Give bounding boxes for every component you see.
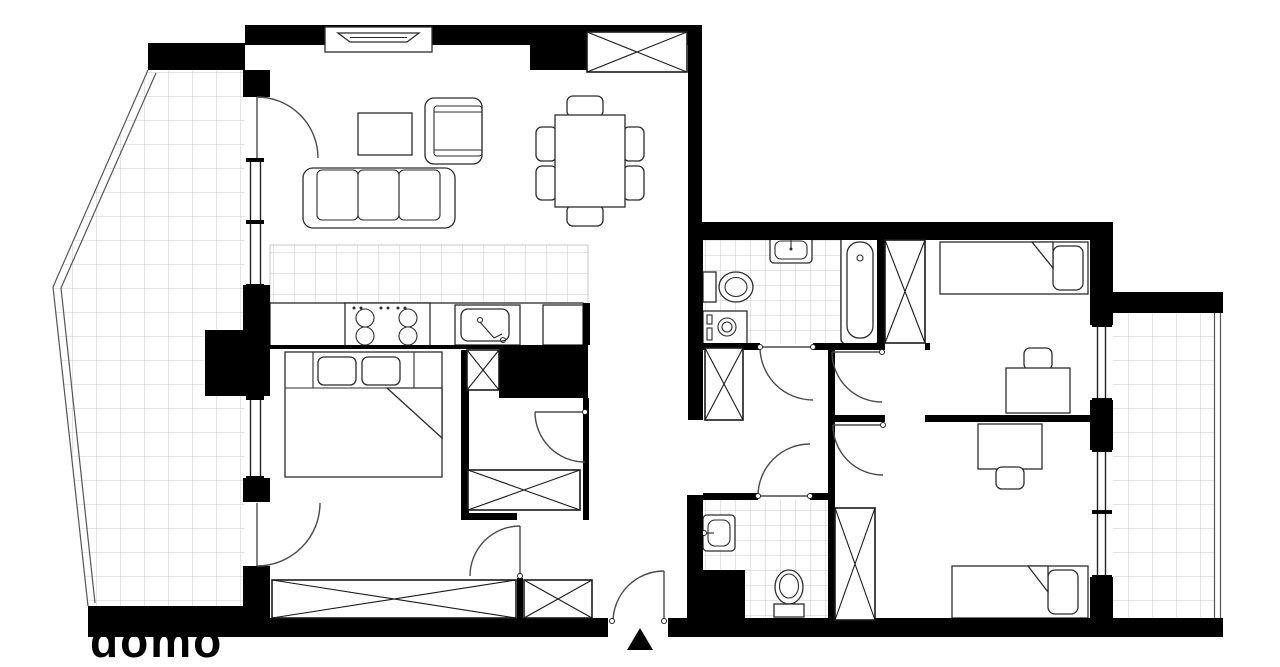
living-room-window bbox=[246, 158, 264, 288]
kitchen-counter bbox=[270, 303, 583, 347]
dining-chair bbox=[623, 166, 644, 200]
floor-plan-page: domo bbox=[0, 0, 1280, 667]
corridor-wardrobe bbox=[468, 470, 580, 510]
toilet-2 bbox=[774, 570, 804, 617]
bedroom-2-wardrobe bbox=[885, 240, 925, 343]
sofa bbox=[303, 168, 455, 228]
dining-chair bbox=[623, 127, 644, 161]
bedroom-2-window bbox=[1092, 323, 1112, 402]
desk-2 bbox=[1006, 348, 1070, 413]
desk-chair bbox=[1024, 348, 1052, 370]
bedroom-3-window bbox=[1092, 448, 1112, 579]
dining-chair bbox=[567, 205, 603, 226]
entrance-marker bbox=[627, 628, 653, 650]
bedroom-1-door bbox=[470, 526, 523, 579]
bathtub bbox=[841, 236, 879, 344]
balcony-right bbox=[1113, 313, 1221, 618]
bedroom-3-door bbox=[833, 423, 886, 476]
bedroom-2-door bbox=[832, 350, 885, 403]
tv-cabinet bbox=[325, 27, 432, 52]
kitchen-tiles bbox=[270, 245, 588, 305]
bedroom-3-wardrobe bbox=[835, 508, 875, 620]
pillow bbox=[318, 357, 356, 385]
desk-chair bbox=[996, 467, 1024, 489]
single-bed-3 bbox=[952, 566, 1088, 618]
coffee-table bbox=[358, 113, 412, 155]
cooktop bbox=[345, 303, 430, 347]
kitchen-sink bbox=[455, 305, 520, 345]
bathroom-2-door bbox=[756, 444, 813, 499]
pillow bbox=[362, 357, 400, 385]
dining-chair bbox=[536, 166, 557, 200]
pillow bbox=[1048, 570, 1078, 614]
bedroom-1-window bbox=[246, 396, 264, 480]
bedroom-3-furniture bbox=[952, 424, 1088, 618]
dining-chair bbox=[567, 96, 603, 117]
desk-3 bbox=[978, 424, 1042, 489]
bathroom-shaft bbox=[705, 348, 743, 420]
washing-machine bbox=[703, 311, 747, 344]
living-room-wardrobe bbox=[587, 32, 687, 72]
toilet bbox=[703, 272, 753, 302]
bathroom-1-door bbox=[758, 345, 816, 401]
bedroom-1-balcony-door bbox=[257, 503, 320, 566]
bedroom-1-wardrobe bbox=[272, 580, 516, 618]
living-room-furniture bbox=[303, 96, 644, 228]
fridge bbox=[543, 305, 583, 345]
living-room-balcony-door bbox=[257, 97, 318, 158]
washbasin-2 bbox=[702, 515, 736, 551]
kitchen-shaft bbox=[467, 350, 499, 390]
corridor-wardrobe-door bbox=[535, 410, 588, 463]
pillow bbox=[1053, 246, 1083, 290]
entry-closet bbox=[524, 580, 592, 618]
bedroom-2-furniture bbox=[940, 242, 1088, 413]
walls bbox=[88, 25, 1223, 637]
dining-table bbox=[536, 96, 644, 226]
entrance-door bbox=[610, 571, 667, 624]
dining-chair bbox=[536, 127, 557, 161]
armchair bbox=[425, 98, 482, 164]
single-bed-2 bbox=[940, 242, 1088, 294]
floor-plan-drawing bbox=[0, 0, 1280, 667]
double-bed bbox=[285, 352, 442, 477]
